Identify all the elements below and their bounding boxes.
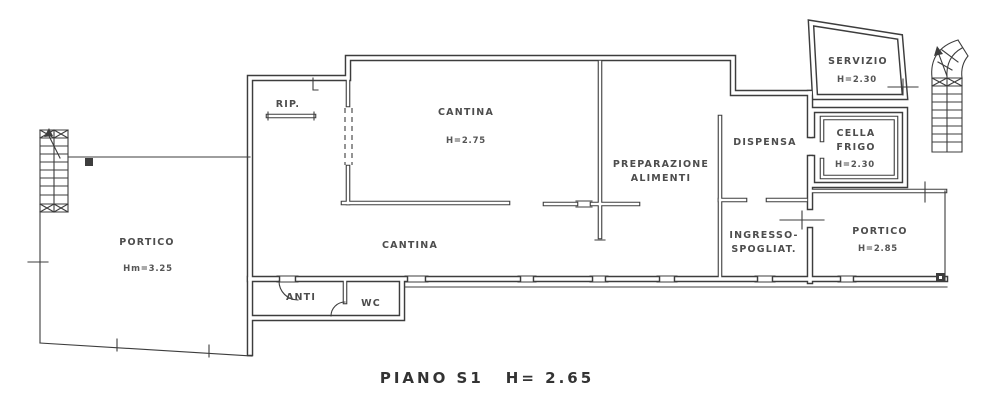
room-label-cella-frigo: CELLA FRIGO [836,127,875,155]
exterior-walls [250,23,945,353]
stairs-direction-arrow [938,52,947,76]
room-label-cantina-lower: CANTINA [382,239,438,253]
room-height-cantina-upper: H=2.75 [446,136,486,146]
room-label-cantina-upper: CANTINA [438,106,494,120]
room-label-ingresso: INGRESSO- SPOGLIAT. [729,229,798,257]
room-height-portico-right: H=2.85 [858,244,898,254]
room-label-preparazione: PREPARAZIONE ALIMENTI [613,158,709,186]
room-height-portico-left: Hm=3.25 [123,264,173,274]
room-label-portico-left: PORTICO [119,236,174,250]
room-label-anti: ANTI [286,291,316,305]
threshold-cross-servizio [888,79,918,95]
pillar-marker [85,158,93,166]
room-height-servizio: H=2.30 [837,75,877,85]
room-label-wc: WC [361,297,381,311]
portico-left-edges [28,157,252,357]
plan-caption: PIANO S1H= 2.65 [380,369,594,387]
door-sills [277,201,947,287]
room-label-dispensa: DISPENSA [733,136,796,150]
room-label-servizio: SERVIZIO [828,55,888,69]
stairs-right [932,40,968,152]
room-label-rip: RIP. [276,98,300,112]
floor-plan: PORTICO Hm=3.25 RIP. CANTINA H=2.75 PREP… [0,0,1000,417]
room-height-cella-frigo: H=2.30 [835,160,875,170]
stairs-left [40,128,68,212]
corner-column [936,191,945,282]
room-label-portico-right: PORTICO [852,225,907,239]
plan-caption-floor: PIANO S1 [380,369,484,387]
plan-caption-height: H= 2.65 [506,369,594,387]
threshold-cross-ingresso [780,211,824,229]
dashed-opening [345,108,352,165]
